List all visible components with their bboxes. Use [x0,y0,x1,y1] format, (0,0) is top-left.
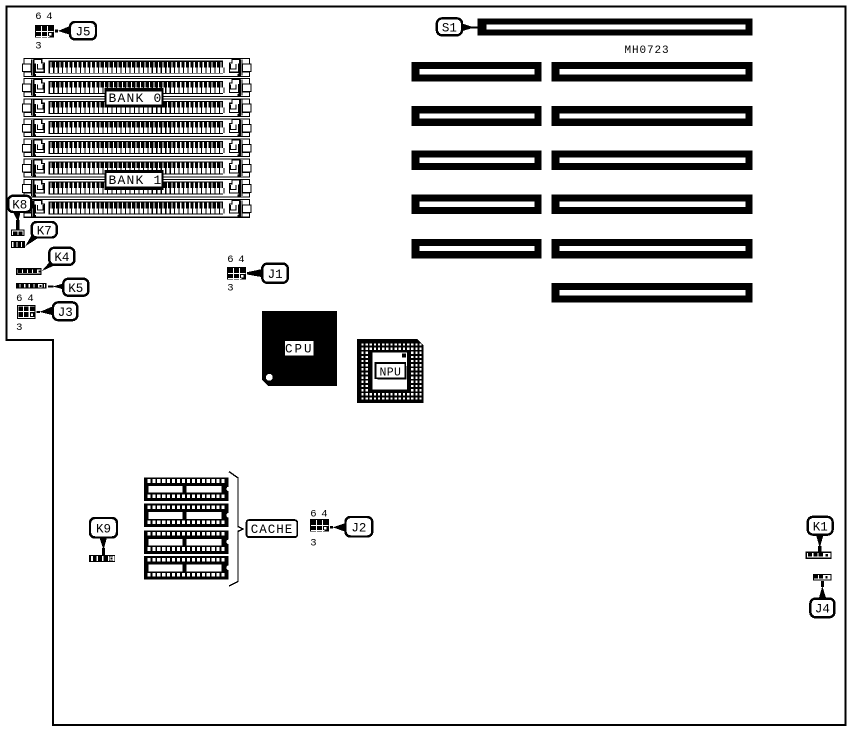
svg-text:J2: J2 [351,521,366,535]
svg-text:6: 6 [35,11,41,23]
svg-text:NPU: NPU [379,366,401,379]
svg-text:3: 3 [227,283,233,295]
svg-text:K9: K9 [96,522,111,536]
svg-text:4: 4 [46,11,52,23]
svg-text:3: 3 [16,322,22,334]
svg-text:J4: J4 [815,603,830,617]
svg-text:4: 4 [321,508,327,520]
svg-text:CACHE: CACHE [251,523,294,537]
svg-text:K1: K1 [813,520,828,534]
svg-text:K8: K8 [12,199,27,213]
svg-text:3: 3 [35,40,41,52]
svg-text:6: 6 [227,254,233,266]
svg-text:4: 4 [27,293,33,305]
svg-text:4: 4 [238,254,244,266]
svg-text:J1: J1 [268,268,283,282]
svg-text:6: 6 [310,508,316,520]
svg-text:6: 6 [16,293,22,305]
svg-text:BANK 1: BANK 1 [109,173,163,188]
svg-text:K5: K5 [68,282,83,296]
svg-text:MH0723: MH0723 [625,45,670,57]
svg-text:K7: K7 [37,224,52,238]
svg-text:3: 3 [310,538,316,550]
svg-text:J3: J3 [58,306,73,320]
svg-text:CPU: CPU [285,343,314,357]
svg-text:K4: K4 [54,251,69,265]
svg-text:BANK 0: BANK 0 [109,91,163,106]
svg-text:S1: S1 [442,21,457,35]
svg-text:J5: J5 [75,25,90,39]
